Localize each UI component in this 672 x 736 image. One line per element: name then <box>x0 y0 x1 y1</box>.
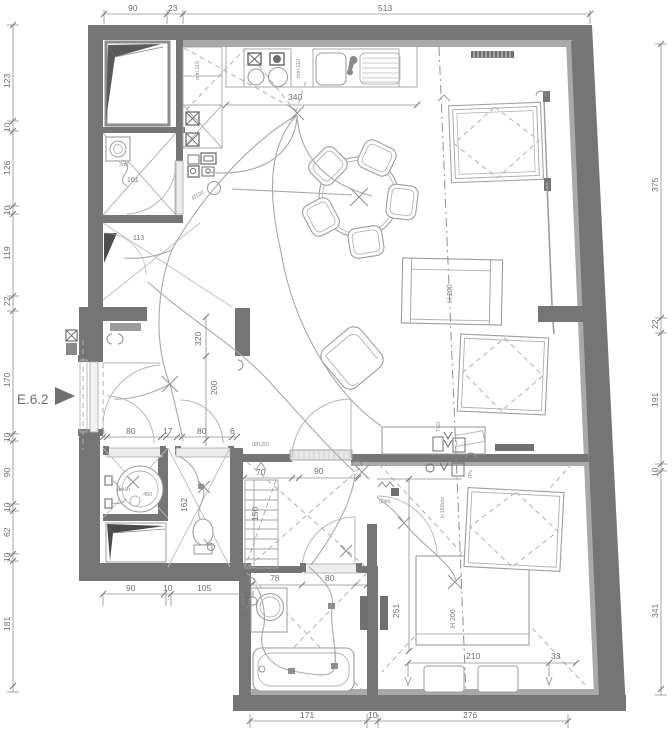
svg-text:119: 119 <box>2 246 12 260</box>
svg-text:113: 113 <box>133 235 144 242</box>
svg-text:10: 10 <box>2 205 12 215</box>
svg-text:276: 276 <box>463 710 477 720</box>
svg-text:170: 170 <box>2 373 12 387</box>
svg-text:80: 80 <box>126 426 136 436</box>
svg-text:10: 10 <box>2 552 12 562</box>
svg-text:boiler: boiler <box>117 487 131 493</box>
svg-text:E.6.2: E.6.2 <box>17 392 49 407</box>
svg-text:22: 22 <box>650 319 660 329</box>
svg-text:320: 320 <box>193 332 203 346</box>
svg-text:450: 450 <box>143 492 152 498</box>
svg-text:181: 181 <box>2 617 12 631</box>
svg-text:90: 90 <box>128 3 138 13</box>
svg-text:90: 90 <box>2 467 12 477</box>
svg-text:210: 210 <box>466 651 480 661</box>
svg-text:IPv: IPv <box>468 470 474 478</box>
svg-text:2m²: 2m² <box>119 162 129 168</box>
svg-text:10: 10 <box>163 583 173 593</box>
svg-text:10: 10 <box>368 710 378 720</box>
svg-text:17: 17 <box>163 426 173 436</box>
svg-text:H 200: H 200 <box>447 284 454 303</box>
svg-text:90: 90 <box>314 466 324 476</box>
svg-text:Ø100: Ø100 <box>191 190 206 202</box>
svg-text:80: 80 <box>197 426 207 436</box>
svg-text:80: 80 <box>325 573 335 583</box>
svg-text:10: 10 <box>2 432 12 442</box>
svg-text:78: 78 <box>270 573 280 583</box>
svg-text:513: 513 <box>378 3 392 13</box>
svg-text:10: 10 <box>2 502 12 512</box>
svg-text:min.110: min.110 <box>296 59 302 78</box>
svg-text:126: 126 <box>2 161 12 175</box>
svg-text:150: 150 <box>250 507 260 521</box>
svg-text:33: 33 <box>551 651 561 661</box>
svg-text:23: 23 <box>168 3 178 13</box>
svg-text:191: 191 <box>650 393 660 407</box>
svg-text:375: 375 <box>650 178 660 192</box>
svg-text:10: 10 <box>2 122 12 132</box>
svg-text:101: 101 <box>127 177 139 184</box>
svg-text:h:160cm: h:160cm <box>440 496 446 518</box>
svg-text:171: 171 <box>300 710 314 720</box>
svg-text:62: 62 <box>2 527 12 537</box>
svg-text:6: 6 <box>230 426 235 436</box>
svg-text:341: 341 <box>650 604 660 618</box>
svg-text:TxD: TxD <box>436 422 442 432</box>
svg-text:123: 123 <box>2 74 12 88</box>
svg-text:90: 90 <box>126 583 136 593</box>
svg-text:162: 162 <box>179 498 189 512</box>
svg-text:22: 22 <box>2 296 12 306</box>
svg-text:251: 251 <box>391 604 401 618</box>
svg-text:6: 6 <box>100 426 105 436</box>
svg-text:200: 200 <box>209 381 219 395</box>
svg-text:min.110: min.110 <box>195 61 201 80</box>
svg-text:340: 340 <box>288 92 302 102</box>
svg-text:H 200: H 200 <box>450 609 457 628</box>
svg-text:105: 105 <box>197 583 211 593</box>
svg-text:(Ø120): (Ø120) <box>252 442 269 448</box>
svg-text:10: 10 <box>650 467 660 477</box>
